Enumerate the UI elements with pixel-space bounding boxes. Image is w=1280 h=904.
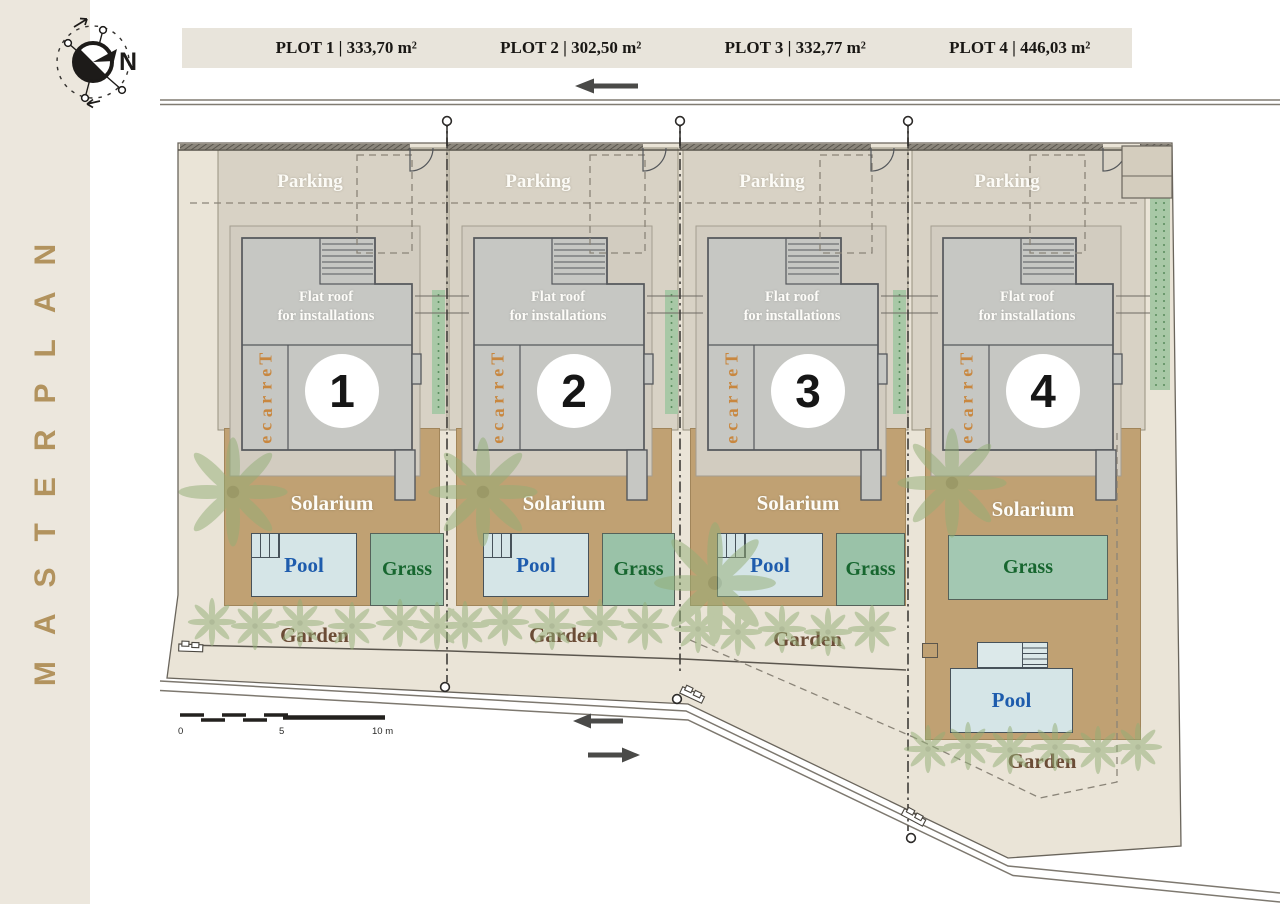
- garden-label: Garden: [449, 623, 678, 648]
- pool-area: Pool: [251, 533, 357, 597]
- plot-number-badge: 1: [305, 354, 379, 428]
- grass-label: Grass: [1003, 556, 1053, 579]
- terrace-label: Terrace: [953, 352, 981, 447]
- plot-2: Parking Solarium Pool Grass Garden: [449, 143, 678, 663]
- scale-tick-0: 0: [178, 726, 183, 737]
- terrace-label: Terrace: [718, 352, 746, 447]
- grass-label: Grass: [846, 558, 896, 581]
- villa-building: Flat rooffor installations Terrace 3: [703, 232, 881, 472]
- terrace-label: Terrace: [484, 352, 512, 447]
- pool-area: Pool: [950, 668, 1073, 733]
- grass-area: Grass: [602, 533, 675, 606]
- parking-label: Parking: [934, 171, 1080, 193]
- compass-north-label: N: [119, 48, 137, 76]
- grass-label: Grass: [614, 558, 664, 581]
- parking-label: Parking: [465, 171, 611, 193]
- pool-area: Pool: [483, 533, 589, 597]
- plot-number-badge: 2: [537, 354, 611, 428]
- pool-label: Pool: [284, 553, 324, 578]
- parking-label: Parking: [237, 171, 383, 193]
- flat-roof-label: Flat rooffor installations: [229, 288, 423, 326]
- pool-area: Pool: [717, 533, 823, 597]
- pool-steps-icon: [977, 642, 1048, 668]
- pool-label: Pool: [516, 553, 556, 578]
- grass-label: Grass: [382, 558, 432, 581]
- parking-label: Parking: [699, 171, 845, 193]
- villa-building: Flat rooffor installations Terrace 1: [237, 232, 415, 472]
- garden-label: Garden: [707, 627, 908, 652]
- grass-area: Grass: [948, 535, 1108, 600]
- scale-tick-10: 10 m: [372, 726, 393, 737]
- compass-icon: N: [48, 2, 160, 110]
- plot-number-badge: 4: [1006, 354, 1080, 428]
- plot-4: Parking Solarium Grass Pool Garden: [912, 143, 1172, 843]
- pool-steps-icon: [252, 534, 280, 558]
- top-road: [160, 100, 1280, 105]
- garden-shed-icon: [922, 643, 938, 658]
- arrow-right-bottom: [588, 748, 640, 763]
- pool-label: Pool: [750, 553, 790, 578]
- scale-bar: 0 5 10 m: [178, 715, 393, 737]
- plot-3: Parking Solarium Pool Grass Garden: [683, 143, 908, 663]
- plot-1: Parking Solarium Pool Grass Garden: [182, 143, 447, 663]
- grass-area: Grass: [836, 533, 905, 606]
- pool-label: Pool: [992, 688, 1032, 713]
- pool-steps-icon: [718, 534, 746, 558]
- garden-label: Garden: [182, 623, 447, 648]
- pool-steps-icon: [484, 534, 512, 558]
- arrow-left-top: [575, 79, 638, 94]
- flat-roof-label: Flat rooffor installations: [461, 288, 655, 326]
- plot-number-badge: 3: [771, 354, 845, 428]
- garden-label: Garden: [932, 749, 1152, 774]
- terrace-label: Terrace: [252, 352, 280, 447]
- villa-building: Flat rooffor installations Terrace 2: [469, 232, 647, 472]
- flat-roof-label: Flat rooffor installations: [695, 288, 889, 326]
- masterplan-page: 0 5 10 m MASTERPLAN PLOT 1 | 333,70 m² P…: [0, 0, 1280, 904]
- grass-area: Grass: [370, 533, 444, 606]
- scale-tick-5: 5: [279, 726, 284, 737]
- flat-roof-label: Flat rooffor installations: [930, 288, 1124, 326]
- villa-building: Flat rooffor installations Terrace 4: [938, 232, 1116, 472]
